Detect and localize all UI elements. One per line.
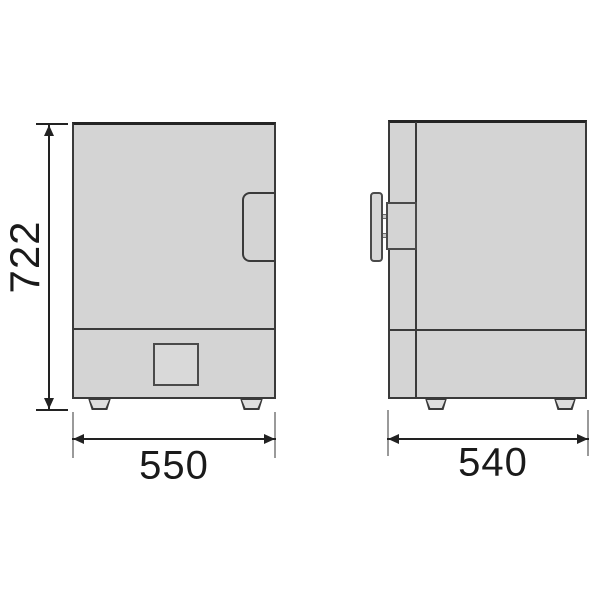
height-dimension-arrow-down xyxy=(44,398,54,409)
depth-dimension-arrow-right xyxy=(577,434,588,444)
height-dimension-arrow-up xyxy=(44,125,54,136)
front-view-lower-panel-divider xyxy=(74,328,274,330)
depth-dimension-label: 540 xyxy=(458,441,528,486)
width-dimension-line xyxy=(72,438,276,440)
side-view-body xyxy=(388,120,587,399)
front-view-right-foot xyxy=(240,398,263,410)
side-view-left-foot xyxy=(425,398,447,410)
depth-extension-line-right xyxy=(587,410,589,456)
width-dimension-arrow-left xyxy=(73,434,84,444)
side-view-door-handle-bar xyxy=(370,192,383,262)
technical-drawing-canvas: 722 550 540 xyxy=(0,0,600,600)
depth-dimension-arrow-left xyxy=(388,434,399,444)
width-dimension-label: 550 xyxy=(139,444,209,489)
side-view-handle-mount-block xyxy=(386,202,417,250)
side-view-door-edge-line xyxy=(415,122,417,397)
height-dimension-label: 722 xyxy=(1,220,49,293)
width-dimension-arrow-right xyxy=(264,434,275,444)
depth-extension-line-left xyxy=(387,410,389,456)
height-dimension-bottom-tick xyxy=(36,409,68,411)
side-view-right-foot xyxy=(554,398,576,410)
side-view-lower-panel-divider xyxy=(390,329,585,331)
front-view-door-handle xyxy=(242,192,274,262)
front-view-left-foot xyxy=(88,398,111,410)
front-view-panel-cutout xyxy=(153,343,199,386)
